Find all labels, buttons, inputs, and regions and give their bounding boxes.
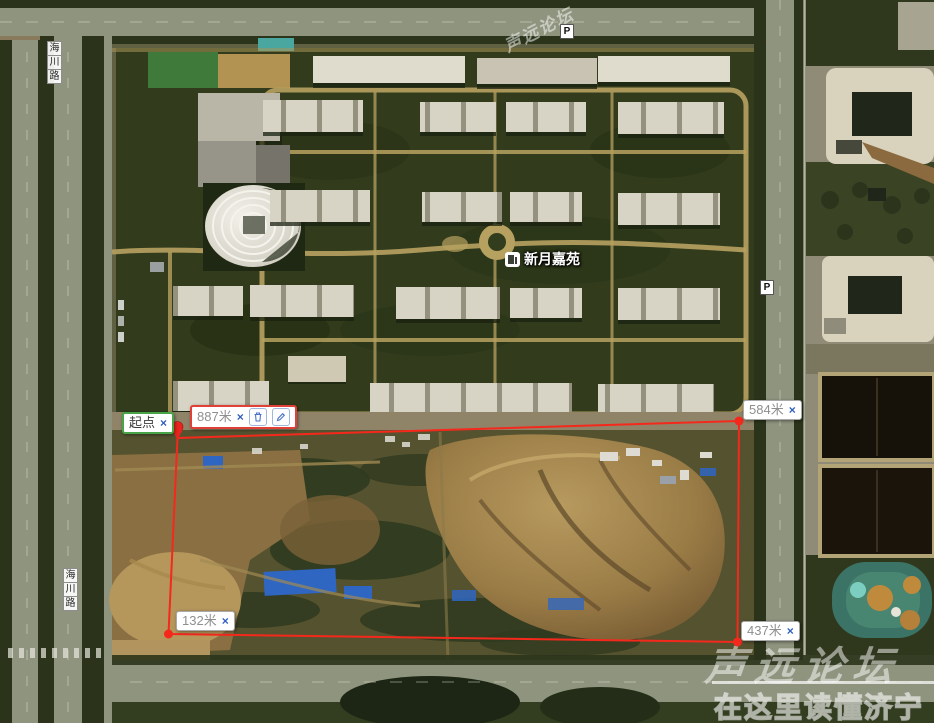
- total-distance-text: 887米: [197, 409, 232, 425]
- trash-icon: [252, 411, 264, 423]
- poi-label-xinyuejiayuan[interactable]: 新月嘉苑: [505, 249, 580, 269]
- close-icon[interactable]: ×: [787, 623, 794, 639]
- road-char: 川: [63, 582, 78, 597]
- distance-text: 132米: [182, 613, 217, 629]
- close-icon[interactable]: ×: [222, 613, 229, 629]
- pencil-icon: [275, 411, 287, 423]
- poi-name-text: 新月嘉苑: [524, 249, 580, 269]
- parking-icon: P: [760, 280, 774, 295]
- road-char: 海: [47, 41, 62, 56]
- measure-point-label: 584米 ×: [743, 400, 802, 420]
- poi-icon: [505, 252, 520, 267]
- road-label-haichuan-bottom: 海 川 路: [63, 569, 78, 611]
- edit-measurement-button[interactable]: [272, 408, 290, 426]
- measure-start-label: 起点 ×: [122, 412, 174, 434]
- measure-vertex[interactable]: [164, 630, 173, 639]
- road-char: 川: [47, 55, 62, 70]
- close-icon[interactable]: ×: [160, 415, 167, 431]
- start-label-text: 起点: [129, 415, 155, 431]
- road-char: 海: [63, 568, 78, 583]
- road-char: 路: [47, 69, 62, 84]
- road-label-haichuan-top: 海 川 路: [47, 42, 62, 84]
- delete-measurement-button[interactable]: [249, 408, 267, 426]
- distance-text: 584米: [749, 402, 784, 418]
- measure-point-label: 132米 ×: [176, 611, 235, 631]
- measurement-polygon: [169, 421, 740, 642]
- map-canvas[interactable]: 声远论坛 声远论坛 在这里读懂济宁 起点 × 887米 ×: [0, 0, 934, 723]
- measurement-overlay: [0, 0, 934, 723]
- parking-icon: P: [560, 24, 574, 39]
- close-icon[interactable]: ×: [789, 402, 796, 418]
- close-icon[interactable]: ×: [237, 409, 244, 425]
- distance-text: 437米: [747, 623, 782, 639]
- measure-point-label: 437米 ×: [741, 621, 800, 641]
- road-char: 路: [63, 596, 78, 611]
- measure-total-label: 887米 ×: [190, 405, 297, 429]
